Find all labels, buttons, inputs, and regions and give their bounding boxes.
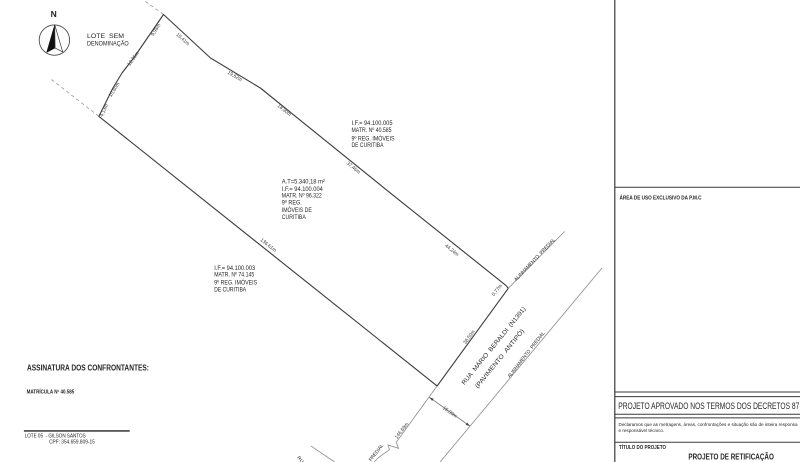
svg-text:DE CURITIBA: DE CURITIBA: [214, 287, 247, 294]
svg-text:MATR. Nº 96.322: MATR. Nº 96.322: [282, 193, 323, 200]
svg-text:4,13m: 4,13m: [99, 103, 110, 118]
svg-text:A.T=5.340,18 m²: A.T=5.340,18 m²: [282, 178, 325, 185]
svg-text:ÁREA DE USO EXCLUSIVO DA P.M.C: ÁREA DE USO EXCLUSIVO DA P.M.C: [620, 195, 702, 202]
svg-text:LOTE SEM: LOTE SEM: [87, 33, 124, 40]
svg-text:0,77m: 0,77m: [491, 283, 504, 297]
svg-text:ASSINATURA DOS CONFRONTANTES:: ASSINATURA DOS CONFRONTANTES:: [27, 363, 149, 372]
svg-text:10,80m: 10,80m: [108, 82, 122, 99]
svg-text:PROJETO DE RETIFICAÇÃO: PROJETO DE RETIFICAÇÃO: [688, 451, 774, 461]
svg-text:12,95m: 12,95m: [127, 51, 141, 67]
svg-text:Declaramos que as metragens, á: Declaramos que as metragens, áreas, conf…: [619, 422, 798, 427]
svg-text:9,98m: 9,98m: [150, 23, 162, 38]
svg-text:ALINHAMENTO PREDIAL: ALINHAMENTO PREDIAL: [345, 443, 385, 462]
svg-text:DE CURITIBA: DE CURITIBA: [352, 142, 385, 149]
svg-text:9º REG.: 9º REG.: [282, 200, 302, 207]
svg-text:CPF: 354.659.809-15: CPF: 354.659.809-15: [49, 440, 95, 446]
svg-text:PROJETO APROVADO NOS TERMOS DO: PROJETO APROVADO NOS TERMOS DOS DECRETOS…: [618, 401, 799, 411]
svg-text:RUA: RUA: [295, 455, 307, 462]
svg-text:19,41m: 19,41m: [175, 32, 191, 47]
svg-text:MATR. Nº 74.145: MATR. Nº 74.145: [214, 271, 255, 278]
svg-text:RUA MÁRIO BERALDI (N1391): RUA MÁRIO BERALDI (N1391): [460, 306, 527, 387]
svg-text:ALINHAMENTO PREDIAL: ALINHAMENTO PREDIAL: [513, 237, 557, 283]
svg-text:MATRÍCULA Nº 40.585: MATRÍCULA Nº 40.585: [27, 387, 75, 395]
svg-text:TÍTULO DO PROJETO: TÍTULO DO PROJETO: [619, 443, 666, 451]
svg-text:44,24m: 44,24m: [443, 243, 459, 258]
svg-text:38,50m: 38,50m: [462, 329, 476, 345]
svg-text:16,00m: 16,00m: [441, 405, 457, 419]
svg-text:DENOMINAÇÃO: DENOMINAÇÃO: [87, 38, 129, 47]
svg-text:18,90m: 18,90m: [276, 103, 292, 118]
svg-text:e responsável técnico.: e responsável técnico.: [619, 428, 665, 433]
svg-text:N: N: [51, 9, 57, 19]
svg-text:146,69m: 146,69m: [394, 422, 410, 441]
svg-text:MATR. Nº 40.585: MATR. Nº 40.585: [352, 127, 393, 134]
svg-text:CURITIBA: CURITIBA: [282, 214, 307, 221]
